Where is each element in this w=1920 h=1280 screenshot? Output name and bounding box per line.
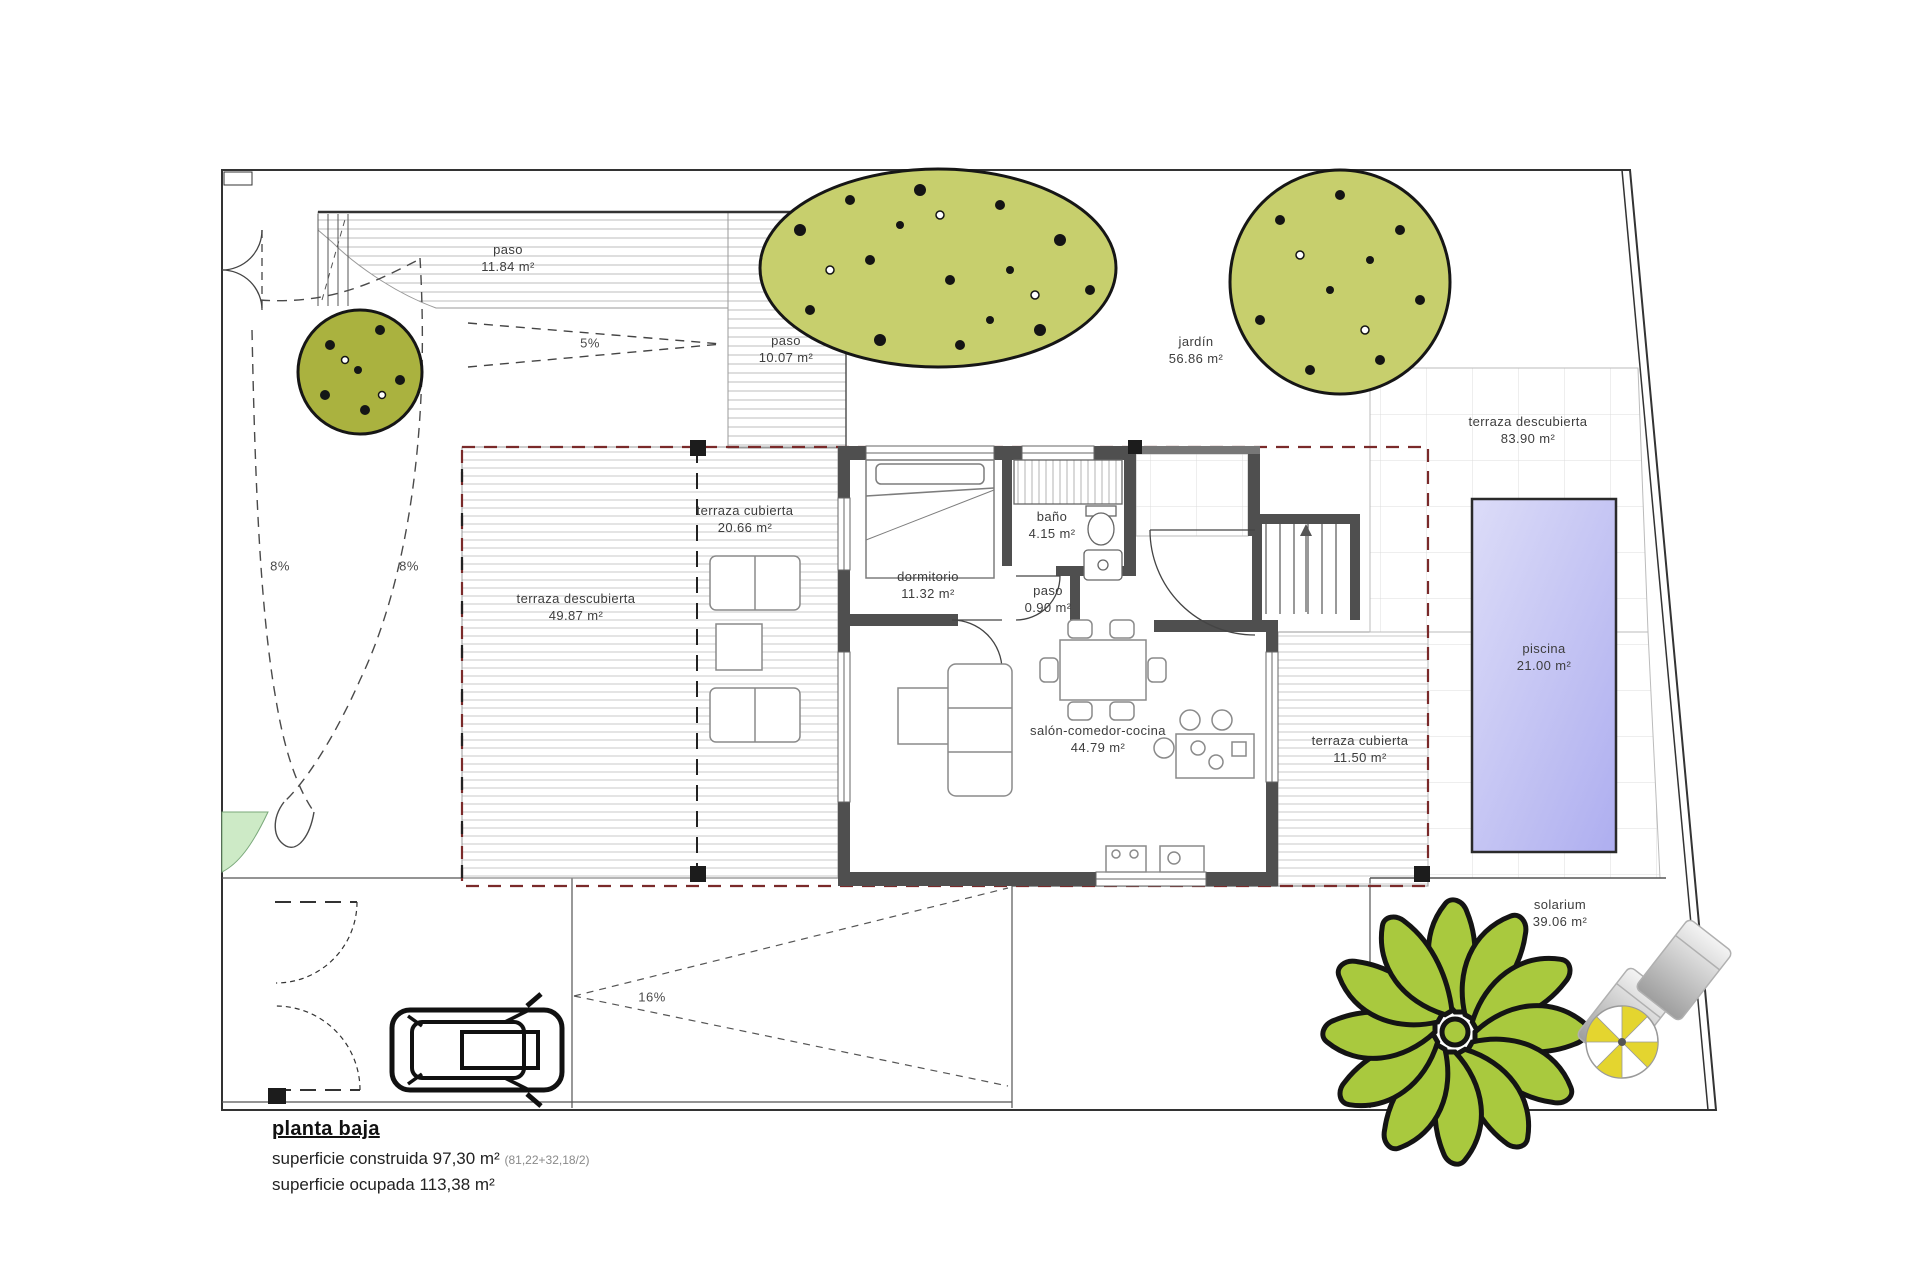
pool — [1472, 499, 1616, 852]
room-label-terraza-cubierta-11: terraza cubierta 11.50 m² — [1312, 732, 1409, 766]
room-label-paso-small: paso 0.90 m² — [1025, 582, 1072, 616]
tree-garden-1 — [760, 169, 1116, 367]
room-label-paso-mid: paso 10.07 m² — [759, 332, 814, 366]
room-label-terraza-descubierta-right: terraza descubierta 83.90 m² — [1469, 413, 1588, 447]
built-area-line: superficie construida 97,30 m² (81,22+32… — [272, 1149, 590, 1169]
room-label-jardin: jardín 56.86 m² — [1169, 333, 1224, 367]
parasol — [1586, 1006, 1658, 1078]
slope-label-8-right: 8% — [399, 559, 419, 574]
plan-legend: planta baja superficie construida 97,30 … — [272, 1118, 590, 1201]
slope-label-16: 16% — [638, 990, 666, 1005]
room-label-paso-top: paso 11.84 m² — [481, 241, 535, 275]
room-label-salon: salón-comedor-cocina 44.79 m² — [1030, 722, 1166, 756]
room-label-terraza-cubierta-20: terraza cubierta 20.66 m² — [697, 502, 794, 536]
bed — [866, 460, 994, 578]
slope-label-8-left: 8% — [270, 559, 290, 574]
floor-plan: paso 11.84 m² paso 10.07 m² jardín 56.86… — [0, 0, 1920, 1280]
room-label-solarium: solarium 39.06 m² — [1533, 896, 1588, 930]
occupied-area-line: superficie ocupada 113,38 m² — [272, 1175, 590, 1195]
plan-drawing — [0, 0, 1920, 1280]
slope-label-5: 5% — [580, 336, 600, 351]
tree-entrance — [298, 310, 422, 434]
room-label-terraza-descubierta-left: terraza descubierta 49.87 m² — [517, 590, 636, 624]
room-label-bano: baño 4.15 m² — [1029, 508, 1076, 542]
tree-garden-2 — [1230, 170, 1450, 394]
plan-title: planta baja — [272, 1118, 590, 1141]
room-label-dormitorio: dormitorio 11.32 m² — [897, 568, 959, 602]
room-label-piscina: piscina 21.00 m² — [1517, 640, 1572, 674]
